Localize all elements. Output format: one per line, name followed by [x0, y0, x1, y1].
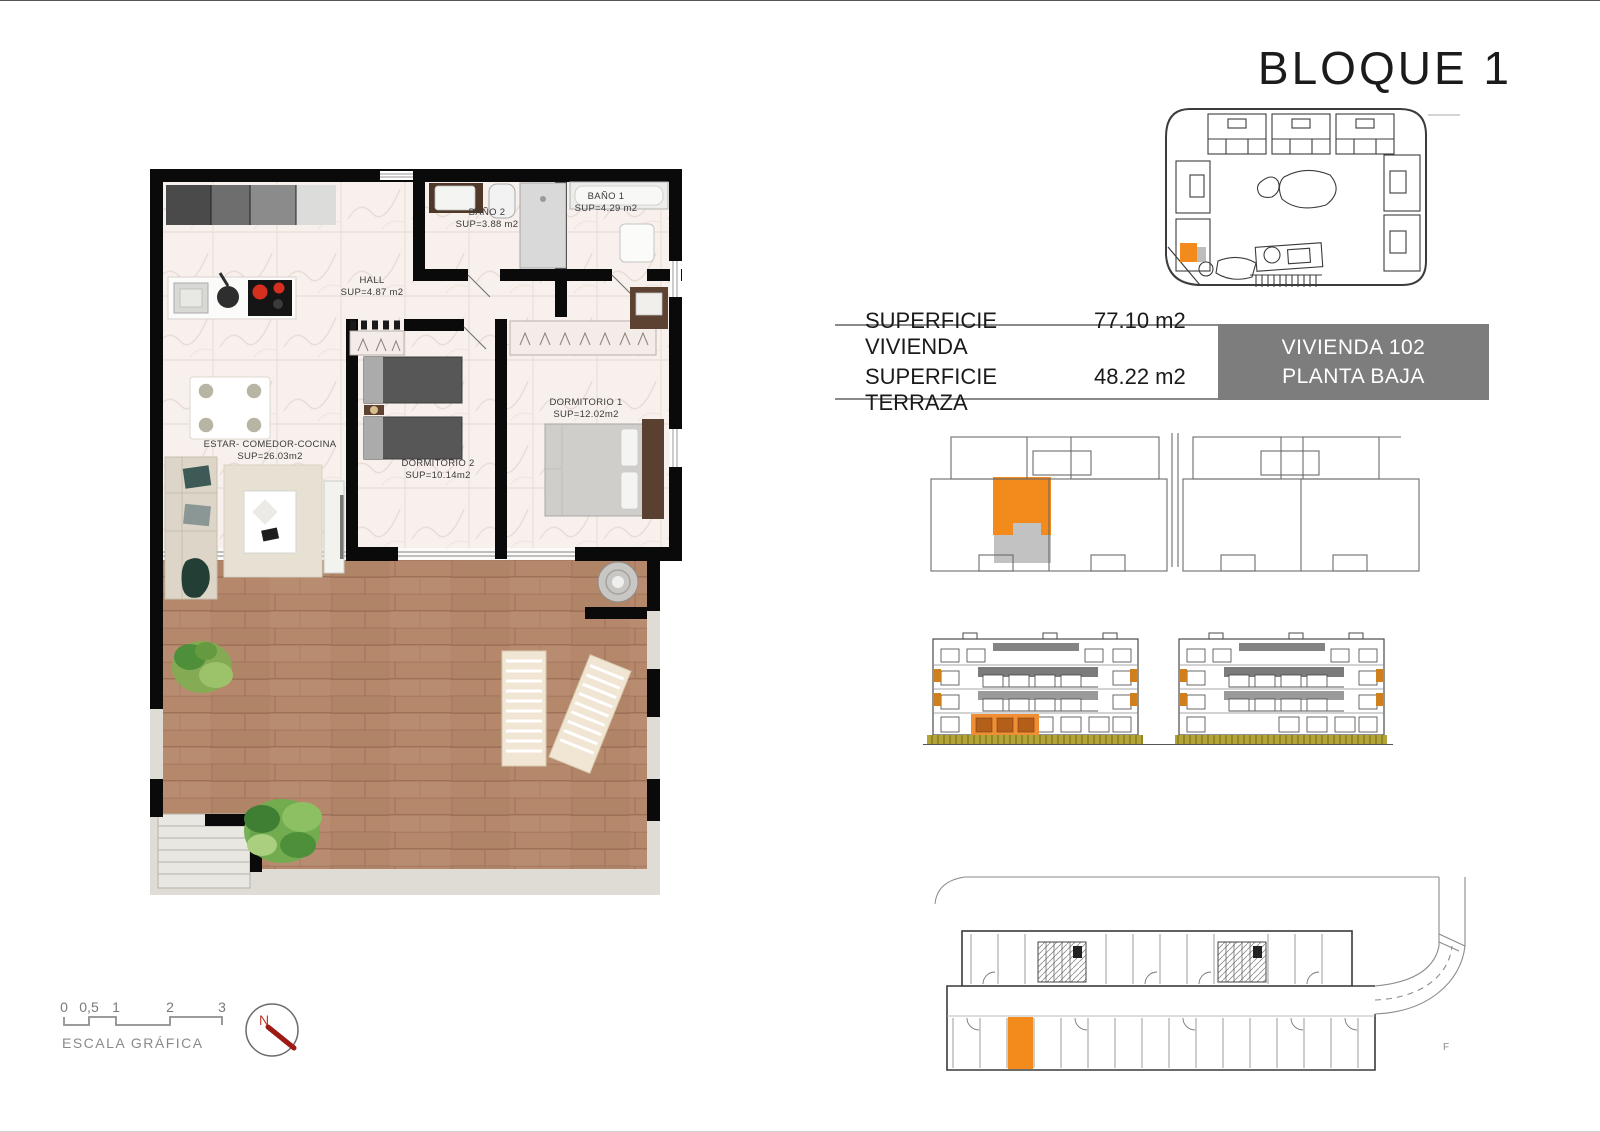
parking-stalls-upper	[971, 934, 1322, 984]
surface-rows: SUPERFICIE VIVIENDA 77.10 m2 SUPERFICIE …	[835, 324, 1218, 400]
plant-icon	[244, 799, 322, 863]
room-label-banio2: BAÑO 2SUP=3.88 m2	[402, 207, 572, 230]
floor-plan: BAÑO 1SUP=4.29 m2 BAÑO 2SUP=3.88 m2 HALL…	[150, 169, 682, 907]
room-label-estar: ESTAR- COMEDOR-COCINASUP=26.03m2	[185, 439, 355, 462]
scale-tick: 3	[218, 1001, 226, 1015]
cooktop-icon	[248, 280, 292, 316]
kitchen-island	[168, 273, 296, 319]
room-label-dormitorio2: DORMITORIO 2SUP=10.14m2	[353, 458, 523, 481]
sun-lounger-icon	[502, 651, 546, 766]
headboard	[642, 419, 664, 519]
coffee-table	[244, 491, 296, 553]
table-row: SUPERFICIE VIVIENDA 77.10 m2	[835, 308, 1218, 360]
scale-tick: 0,5	[79, 1001, 99, 1015]
scale-tick: 1	[112, 1001, 120, 1015]
scale-bar: 0 0,5 1 2 3	[60, 1001, 260, 1035]
toilet-icon	[620, 224, 654, 262]
parking-corner-mark: F	[1443, 1042, 1449, 1053]
parking-spot-highlight	[1008, 1017, 1033, 1069]
ramp	[1375, 877, 1465, 1014]
hedge	[1175, 735, 1387, 744]
washing-machine-icon	[598, 562, 638, 602]
summary-table: SUPERFICIE VIVIENDA 77.10 m2 SUPERFICIE …	[835, 324, 1489, 400]
surface-label: SUPERFICIE TERRAZA	[865, 364, 1094, 416]
scale-tick: 0	[60, 1001, 68, 1015]
compass-icon: N	[240, 997, 304, 1061]
parking-plan	[923, 854, 1483, 1079]
scale-label: ESCALA GRÁFICA	[62, 1035, 204, 1051]
unit-number: VIVIENDA 102	[1282, 333, 1426, 362]
surface-value: 48.22 m2	[1094, 364, 1204, 416]
room-label-dormitorio1: DORMITORIO 1SUP=12.02m2	[501, 397, 671, 420]
table-row: SUPERFICIE TERRAZA 48.22 m2	[835, 364, 1218, 416]
tv-icon	[340, 495, 344, 559]
unit-floor: PLANTA BAJA	[1282, 362, 1425, 391]
scale-tick: 2	[166, 1001, 174, 1015]
stair-core	[1038, 942, 1266, 982]
keyplan-terrace-highlight	[994, 535, 1051, 563]
site-plan	[1138, 97, 1468, 302]
door-swings	[983, 972, 1319, 984]
hedge	[927, 735, 1143, 744]
unit-badge: VIVIENDA 102 PLANTA BAJA	[1218, 324, 1489, 400]
site-highlight-unit	[1180, 243, 1197, 262]
unit-key-plan	[921, 415, 1436, 605]
plan-sheet: BLOQUE 1	[0, 0, 1600, 1132]
dining-table	[190, 377, 270, 439]
kitchen-counter	[166, 185, 336, 225]
pan-icon	[217, 286, 239, 308]
elevation-unit-highlight	[971, 714, 1039, 735]
page-title: BLOQUE 1	[1258, 41, 1512, 95]
room-label-hall: HALLSUP=4.87 m2	[287, 275, 457, 298]
surface-value: 77.10 m2	[1094, 308, 1204, 360]
surface-label: SUPERFICIE VIVIENDA	[865, 308, 1094, 360]
elevation-drawing	[923, 623, 1393, 753]
